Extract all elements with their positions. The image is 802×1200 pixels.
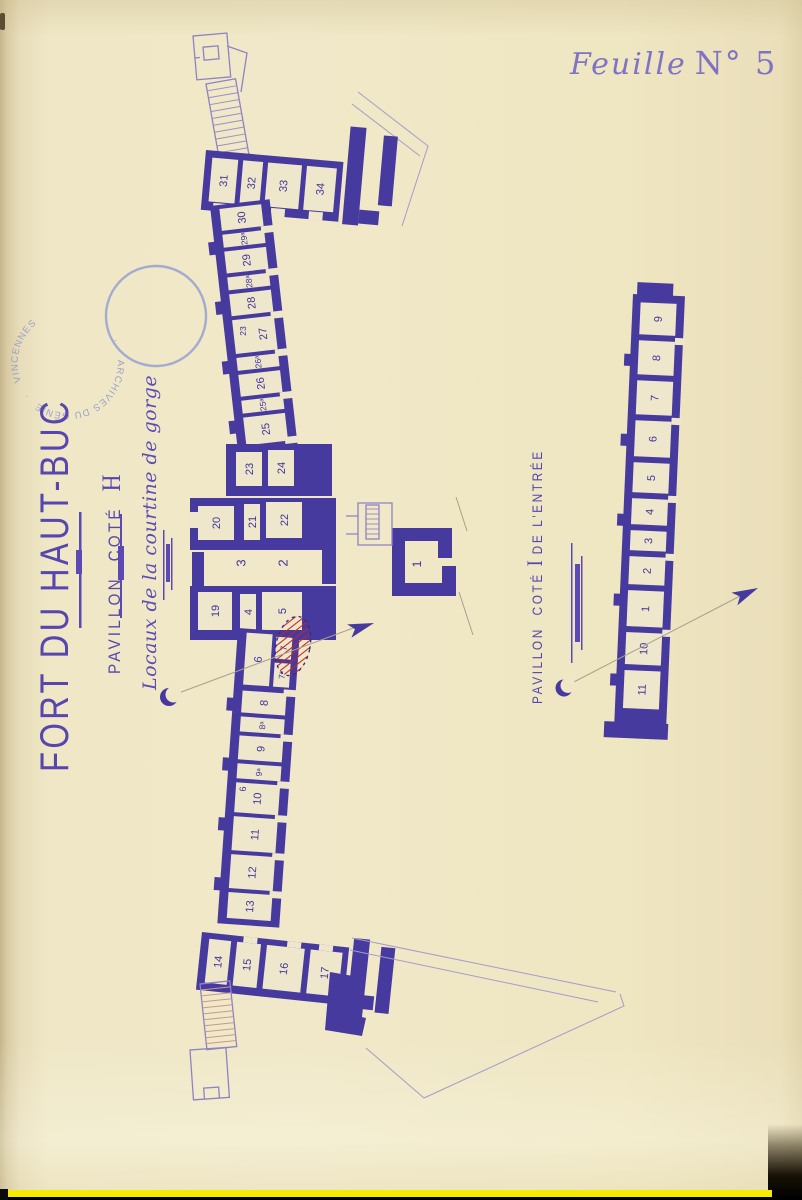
svg-text:VINCENNES: VINCENNES [0, 316, 58, 386]
room-number: 24 [276, 462, 288, 474]
sheet-word: Feuille [570, 47, 687, 82]
sheet-no: N° 5 [695, 44, 778, 82]
pavilion-letter: I [523, 560, 547, 566]
wall-buttress [226, 697, 234, 710]
plan-group-entree-wing: 9876543211011 [604, 282, 688, 740]
room-number: 4 [243, 609, 255, 615]
door-gap [665, 554, 675, 561]
plan-group-middle-cluster: 23242021221945 [188, 444, 336, 643]
room-number: 25 [260, 422, 273, 436]
door-gap [275, 815, 289, 823]
room-number: 33 [278, 179, 291, 192]
room-number: 13 [244, 900, 257, 913]
wall-slab [637, 282, 674, 298]
wall-buttress [215, 301, 223, 315]
room-number: 4 [644, 509, 656, 516]
page-title: FORT DU HAUT-BUC [33, 398, 78, 772]
room-number: 19 [210, 605, 222, 617]
bottom-yellow-strip [5, 1190, 772, 1197]
door-gap [272, 853, 286, 861]
room-number: 2 [642, 568, 654, 575]
wall-buttress [228, 420, 236, 434]
door-gap [270, 208, 285, 219]
room-number: 1 [640, 606, 652, 613]
room-number: 27 [257, 327, 270, 341]
room-number: 15 [241, 958, 254, 971]
room-number: 8 [258, 700, 270, 707]
scan-corner-shadow [768, 1124, 802, 1200]
room-number: 2 [276, 559, 291, 566]
wall-slab [322, 548, 336, 584]
bottom-left-black [0, 1189, 8, 1200]
room-number: 14 [212, 955, 225, 968]
sheet-number: FeuilleN° 5 [570, 44, 777, 82]
room-number: 7 [649, 395, 661, 402]
room-number: 23 [244, 463, 256, 475]
room-number: 32 [246, 177, 259, 190]
room-number: 26ᵃ [252, 354, 263, 369]
room-number: 25ᵃ [257, 397, 268, 412]
room-number: 10 [252, 792, 265, 805]
room-number: 20 [211, 517, 223, 529]
arrow-icon [347, 616, 376, 637]
room-number: 22 [279, 514, 291, 526]
room-number: 28 [245, 296, 258, 310]
subtitle-pavillon-i: PAVILLON COTÉ I DE L'ENTRÉE [523, 449, 548, 704]
room-number: 29 [241, 253, 254, 267]
room-number: 9 [255, 745, 267, 752]
door-gap [308, 211, 323, 222]
wall-slab [604, 721, 669, 740]
wall-buttress [222, 361, 230, 375]
wall-buttress [617, 514, 625, 526]
door-gap [675, 338, 685, 345]
room-number: 5 [277, 608, 289, 614]
door-gap [188, 512, 198, 528]
subtitle-locaux: Locaux de la courtine de gorge [139, 375, 161, 690]
wall-buttress [624, 354, 632, 366]
paper-speck [0, 13, 5, 30]
room-number: 11 [636, 684, 648, 696]
wall-slab [192, 552, 204, 586]
wall-slab [378, 135, 398, 206]
wall-buttress [613, 593, 621, 605]
room-number: 10 [638, 642, 651, 655]
room-number: 12 [246, 866, 259, 879]
room-number: 11 [249, 829, 262, 841]
door-gap [280, 734, 294, 742]
wall-buttress [620, 434, 628, 446]
wall-slab [347, 994, 374, 1011]
room-layer: 313233343029ᵃ2928ᵃ282726ᵃ2625ᵃ2523242021… [188, 114, 687, 1028]
door-gap [671, 418, 681, 425]
wall-slab [358, 210, 379, 226]
stamp-arc-bottom: VINCENNES [0, 316, 58, 386]
room-number: 8 [651, 355, 663, 362]
room-number: 5 [646, 475, 658, 482]
wall-buttress [218, 817, 226, 830]
subtitle-pavillon-h: PAVILLON COTÉ H [97, 474, 127, 674]
scanned-plan-sheet: { "sheet": { "word": "Feuille", "number"… [0, 0, 802, 1200]
wall-buttress [222, 757, 230, 770]
room-number: 26 [255, 377, 268, 391]
door-gap [269, 891, 283, 899]
plan-group-upper-wing: 3029ᵃ2928ᵃ282726ᵃ2625ᵃ25 [204, 199, 300, 453]
svg-text:·: · [20, 390, 33, 401]
room-number: 6 [647, 436, 659, 443]
pavilion-letter: H [97, 474, 126, 491]
room-number: 9 [653, 316, 665, 323]
room-number: 29ᵃ [238, 231, 249, 246]
room-number: 6 [238, 786, 248, 791]
door-gap [668, 496, 678, 503]
arrow-icon [731, 582, 760, 606]
room-number: 28ᵃ [243, 274, 254, 289]
room-number: 1 [410, 560, 424, 567]
room-number: 34 [314, 183, 327, 196]
door-gap [283, 689, 297, 697]
room-number: 21 [247, 516, 259, 528]
room-number: 16 [278, 962, 291, 975]
door-gap [277, 781, 291, 789]
room-number: 3 [234, 559, 249, 566]
wall-buttress [214, 877, 222, 890]
room-number: 30 [236, 211, 249, 225]
wall-buttress [208, 242, 216, 256]
room-number: 31 [218, 174, 231, 187]
room-number: 23 [238, 326, 248, 336]
wall-buttress [610, 673, 618, 685]
room-number: 3 [643, 538, 655, 545]
